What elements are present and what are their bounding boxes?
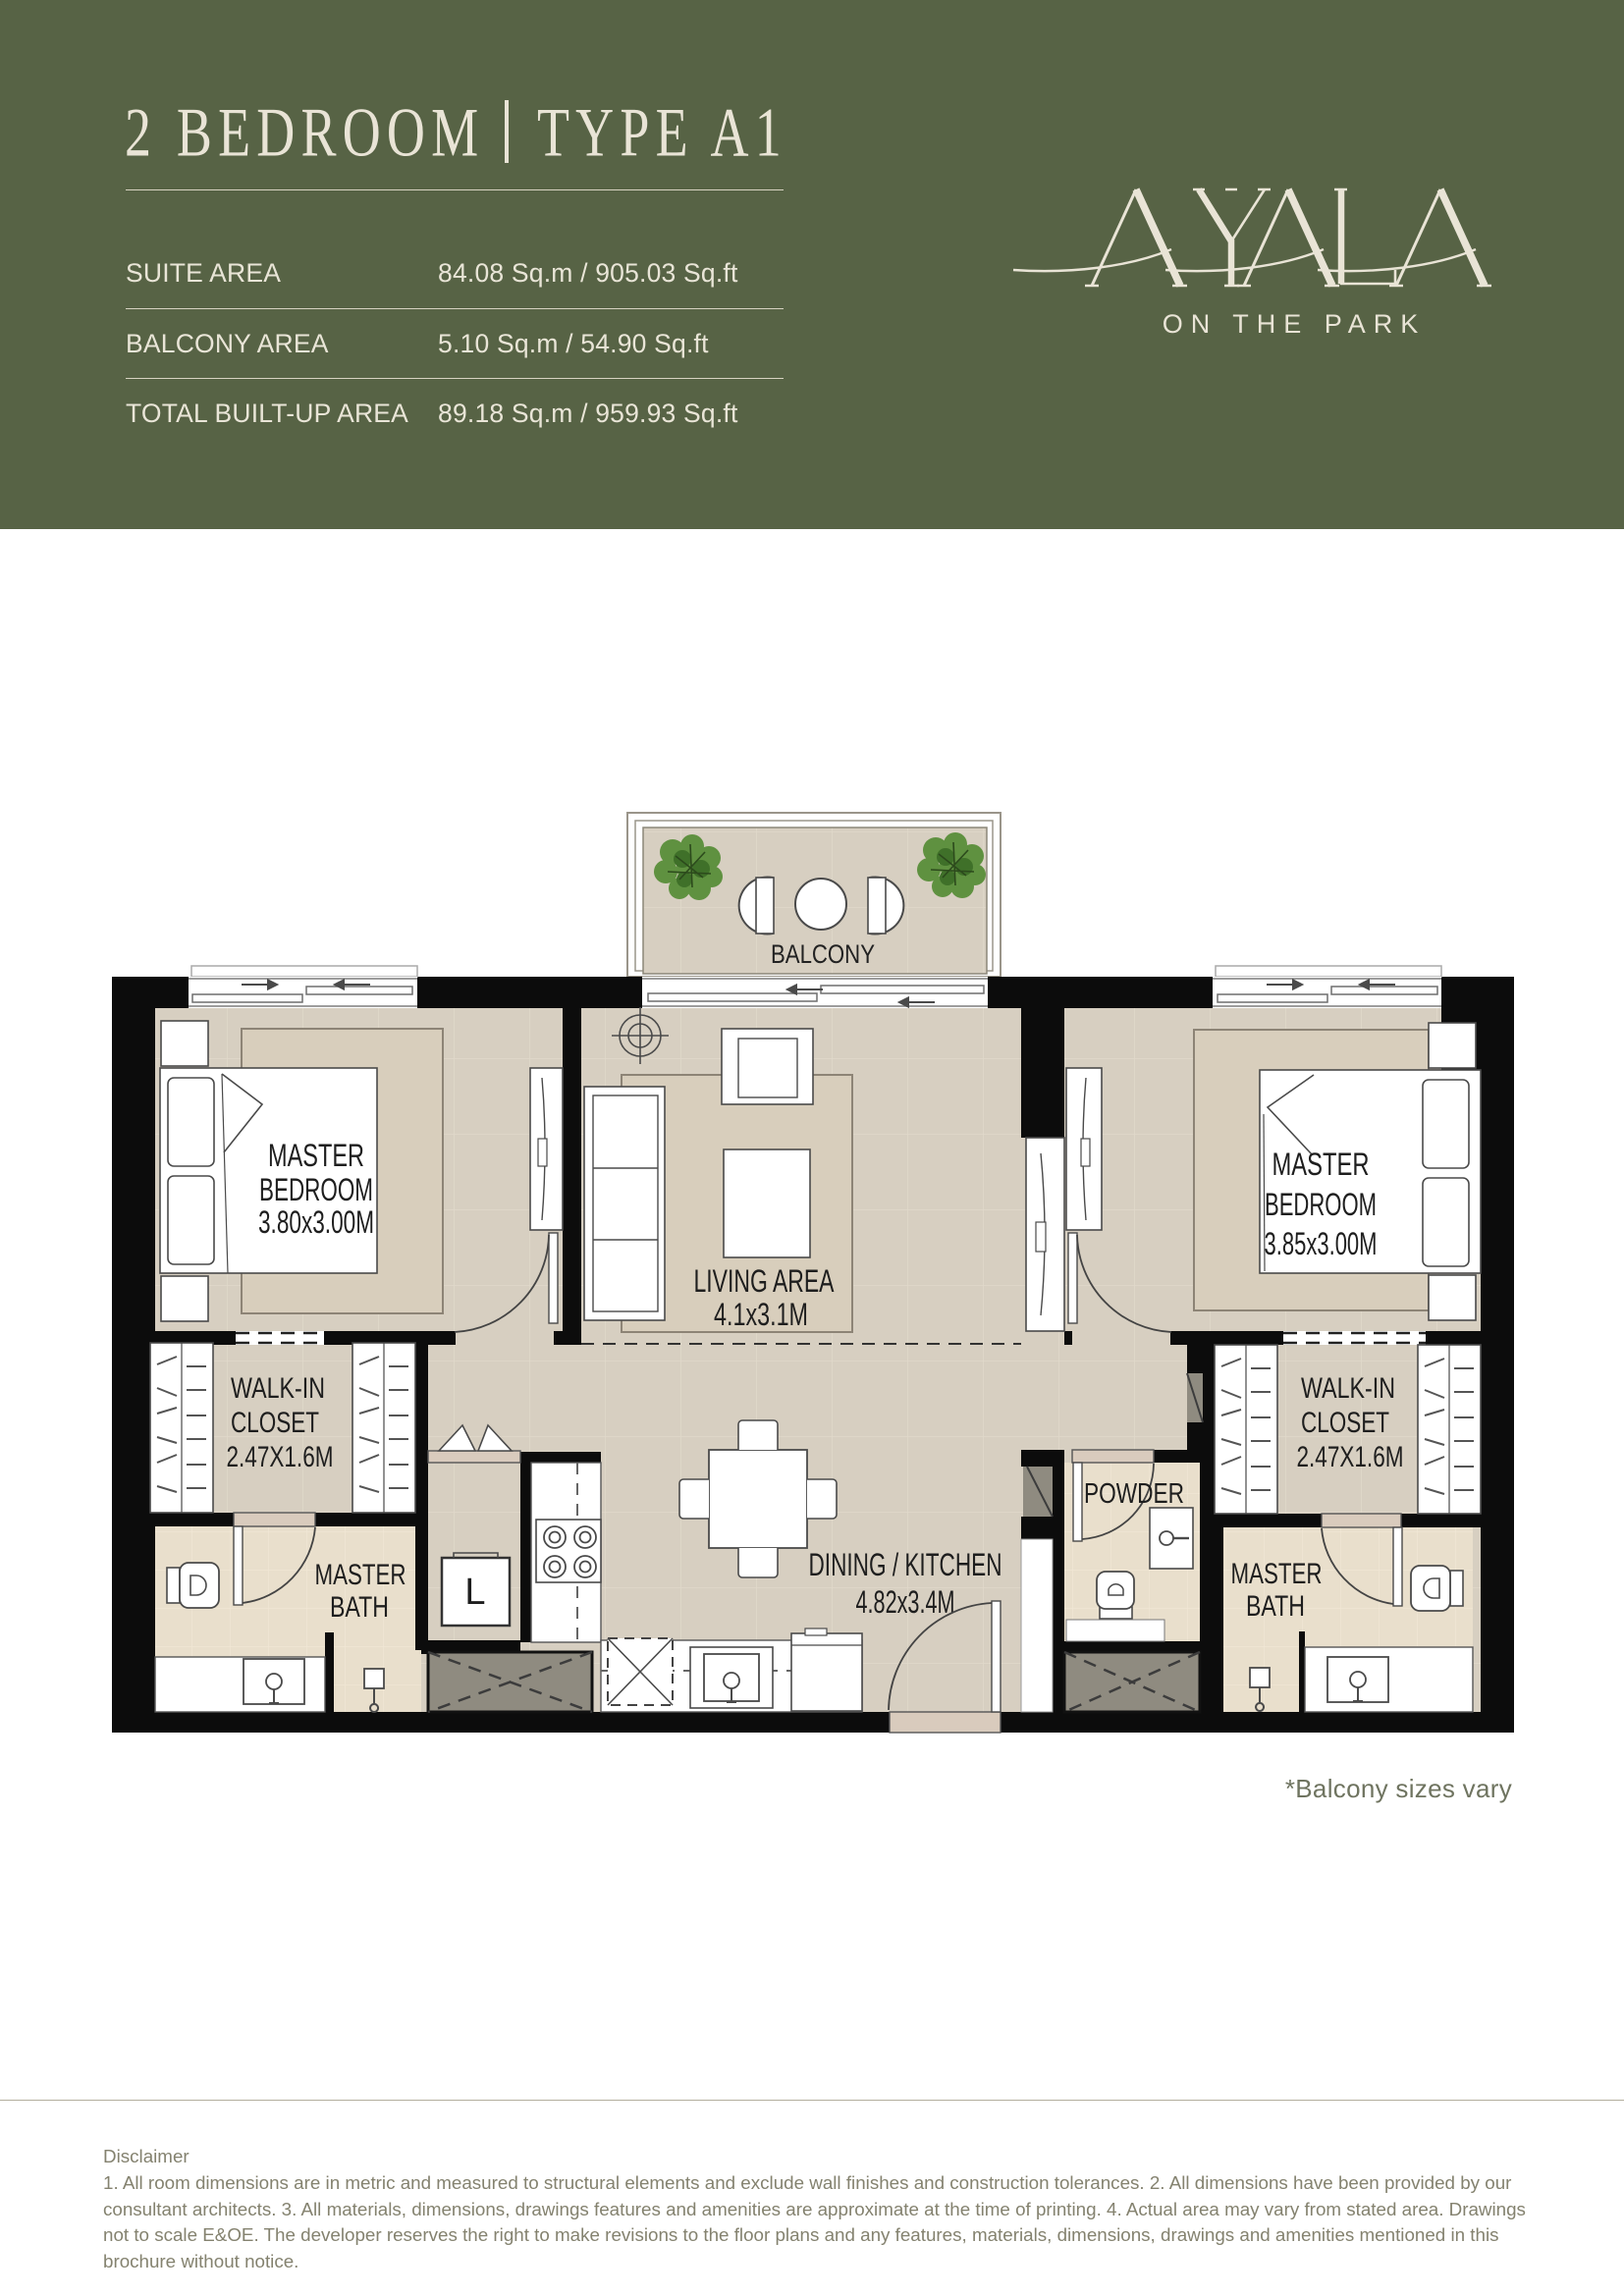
svg-text:BEDROOM: BEDROOM xyxy=(259,1172,373,1207)
svg-text:3.80x3.00M: 3.80x3.00M xyxy=(258,1204,374,1240)
svg-text:4.1x3.1M: 4.1x3.1M xyxy=(714,1297,808,1332)
svg-text:L: L xyxy=(464,1572,485,1613)
svg-text:CLOSET: CLOSET xyxy=(1301,1407,1389,1439)
svg-text:DINING / KITCHEN: DINING / KITCHEN xyxy=(809,1547,1002,1582)
svg-text:WALK-IN: WALK-IN xyxy=(1301,1372,1395,1405)
svg-text:WALK-IN: WALK-IN xyxy=(231,1372,325,1405)
svg-text:BEDROOM: BEDROOM xyxy=(1265,1187,1377,1222)
svg-text:3.85x3.00M: 3.85x3.00M xyxy=(1265,1226,1378,1261)
svg-text:BALCONY: BALCONY xyxy=(771,939,875,969)
svg-text:MASTER: MASTER xyxy=(1272,1147,1370,1182)
svg-text:MASTER: MASTER xyxy=(268,1138,364,1173)
svg-text:LIVING AREA: LIVING AREA xyxy=(694,1263,835,1299)
svg-text:4.82x3.4M: 4.82x3.4M xyxy=(856,1584,955,1620)
svg-text:2.47X1.6M: 2.47X1.6M xyxy=(1297,1441,1404,1473)
svg-text:2.47X1.6M: 2.47X1.6M xyxy=(227,1441,334,1473)
svg-text:BATH: BATH xyxy=(330,1591,389,1624)
svg-text:MASTER: MASTER xyxy=(1231,1558,1323,1590)
svg-text:MASTER: MASTER xyxy=(315,1559,406,1591)
svg-text:BATH: BATH xyxy=(1246,1590,1305,1623)
svg-text:CLOSET: CLOSET xyxy=(231,1407,319,1439)
svg-text:POWDER: POWDER xyxy=(1084,1478,1184,1510)
